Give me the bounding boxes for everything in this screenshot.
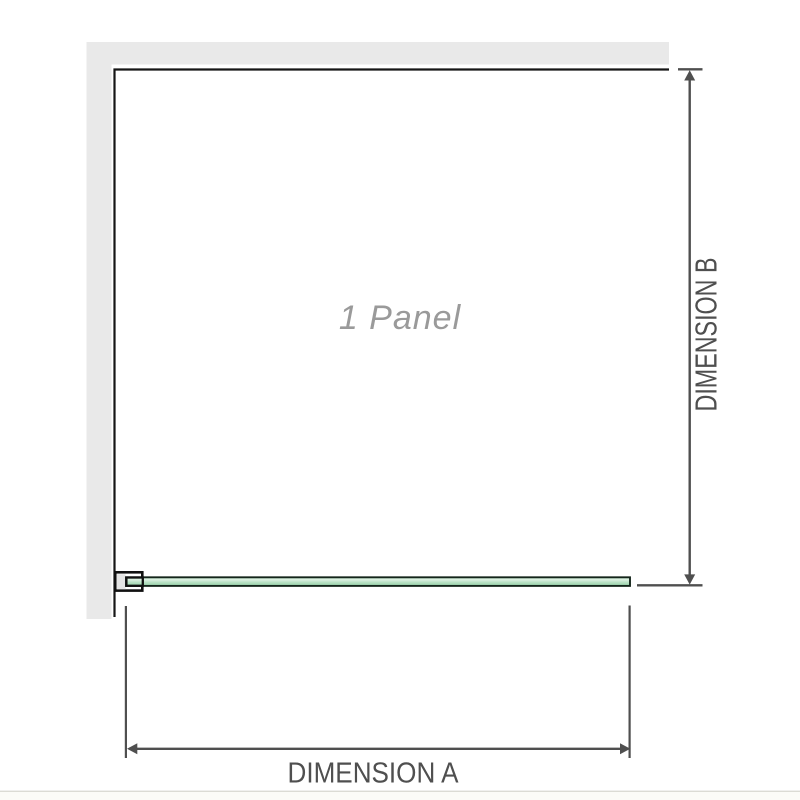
svg-text:DIMENSION B: DIMENSION B	[689, 258, 724, 412]
svg-text:DIMENSION A: DIMENSION A	[288, 758, 460, 790]
svg-text:1 Panel: 1 Panel	[339, 299, 462, 337]
